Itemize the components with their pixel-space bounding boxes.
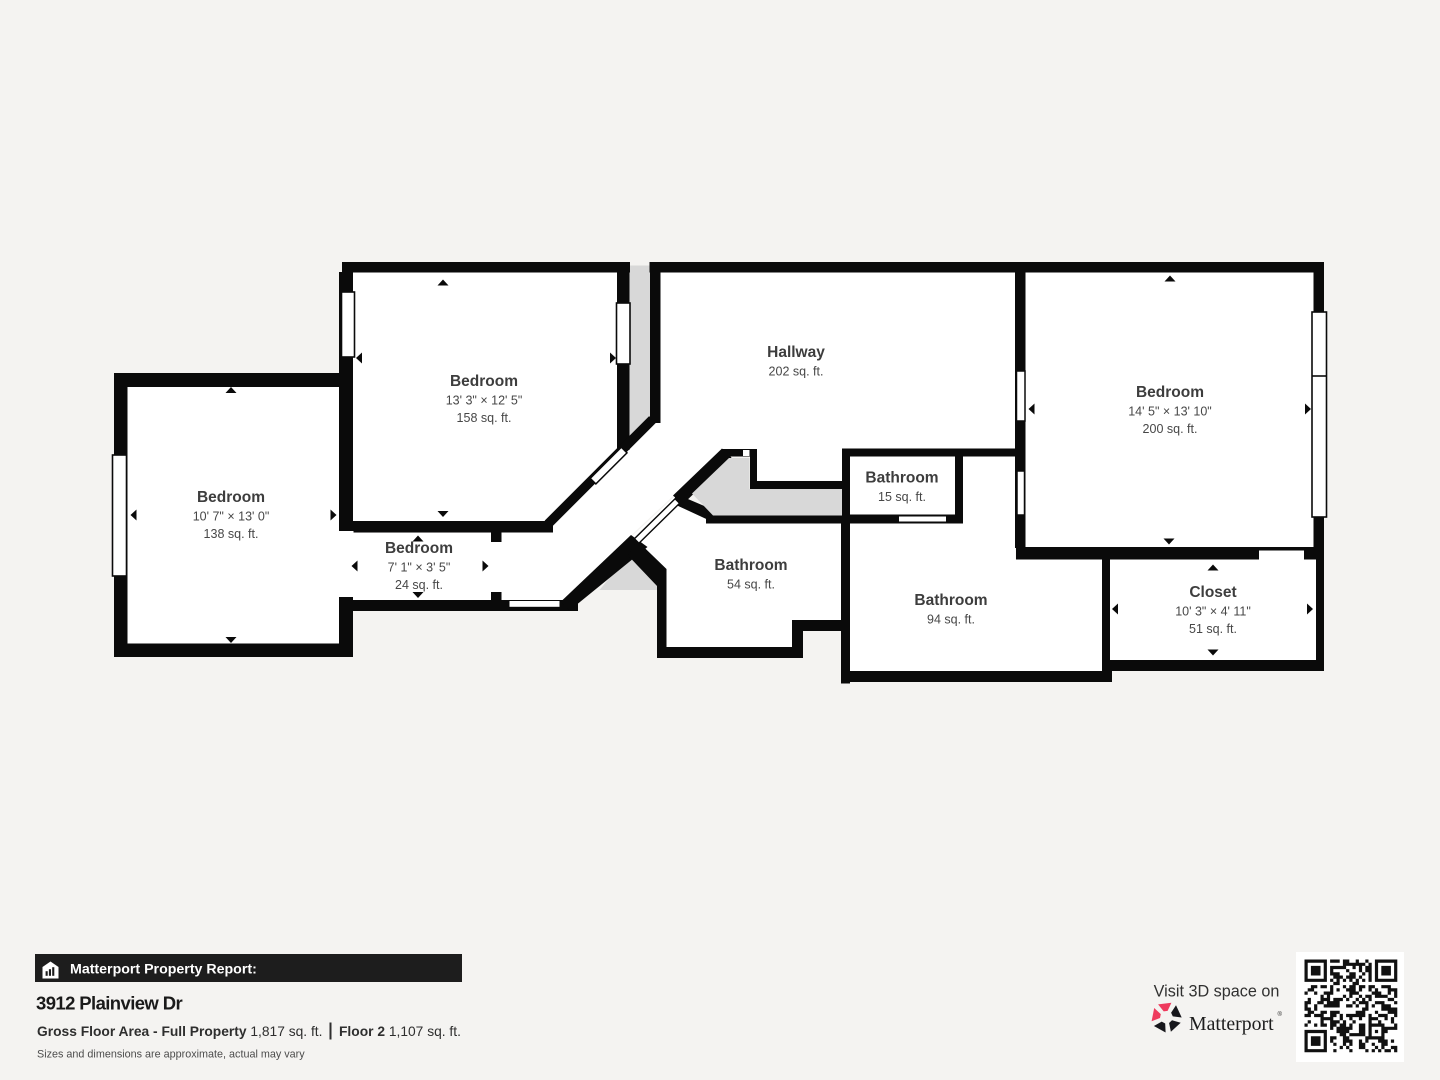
svg-text:Bathroom: Bathroom — [714, 557, 787, 574]
svg-text:Hallway: Hallway — [767, 344, 825, 361]
svg-text:Matterport: Matterport — [1189, 1013, 1274, 1035]
svg-text:200 sq. ft.: 200 sq. ft. — [1143, 422, 1198, 436]
svg-text:138 sq. ft.: 138 sq. ft. — [204, 527, 259, 541]
svg-text:Bathroom: Bathroom — [914, 592, 987, 609]
svg-text:202 sq. ft.: 202 sq. ft. — [769, 365, 824, 379]
svg-text:Closet: Closet — [1189, 584, 1236, 601]
svg-text:10' 3" × 4' 11": 10' 3" × 4' 11" — [1175, 605, 1251, 619]
svg-text:Bedroom: Bedroom — [385, 540, 453, 557]
svg-text:158 sq. ft.: 158 sq. ft. — [457, 411, 512, 425]
svg-text:®: ® — [1278, 1011, 1283, 1018]
svg-text:Sizes and dimensions are appro: Sizes and dimensions are approximate, ac… — [37, 1049, 305, 1061]
svg-text:Visit 3D space on: Visit 3D space on — [1154, 983, 1280, 1001]
svg-text:Gross Floor Area - Full Proper: Gross Floor Area - Full Property 1,817 s… — [37, 1024, 322, 1039]
svg-text:Bedroom: Bedroom — [1136, 384, 1204, 401]
svg-text:54 sq. ft.: 54 sq. ft. — [727, 578, 775, 592]
svg-text:15 sq. ft.: 15 sq. ft. — [878, 490, 926, 504]
svg-text:14' 5" × 13' 10": 14' 5" × 13' 10" — [1128, 405, 1212, 419]
svg-text:3912 Plainview Dr: 3912 Plainview Dr — [36, 993, 183, 1014]
svg-text:94 sq. ft.: 94 sq. ft. — [927, 613, 975, 627]
svg-text:51 sq. ft.: 51 sq. ft. — [1189, 622, 1237, 636]
svg-text:24 sq. ft.: 24 sq. ft. — [395, 578, 443, 592]
svg-text:10' 7" × 13' 0": 10' 7" × 13' 0" — [193, 510, 270, 524]
svg-text:7' 1" × 3' 5": 7' 1" × 3' 5" — [388, 561, 451, 575]
svg-text:13' 3" × 12' 5": 13' 3" × 12' 5" — [446, 394, 523, 408]
svg-text:Bathroom: Bathroom — [865, 470, 938, 487]
svg-text:Matterport Property Report:: Matterport Property Report: — [70, 962, 257, 978]
svg-text:Bedroom: Bedroom — [450, 373, 518, 390]
svg-text:Bedroom: Bedroom — [197, 489, 265, 506]
svg-text:Floor 2 1,107 sq. ft.: Floor 2 1,107 sq. ft. — [339, 1024, 461, 1039]
